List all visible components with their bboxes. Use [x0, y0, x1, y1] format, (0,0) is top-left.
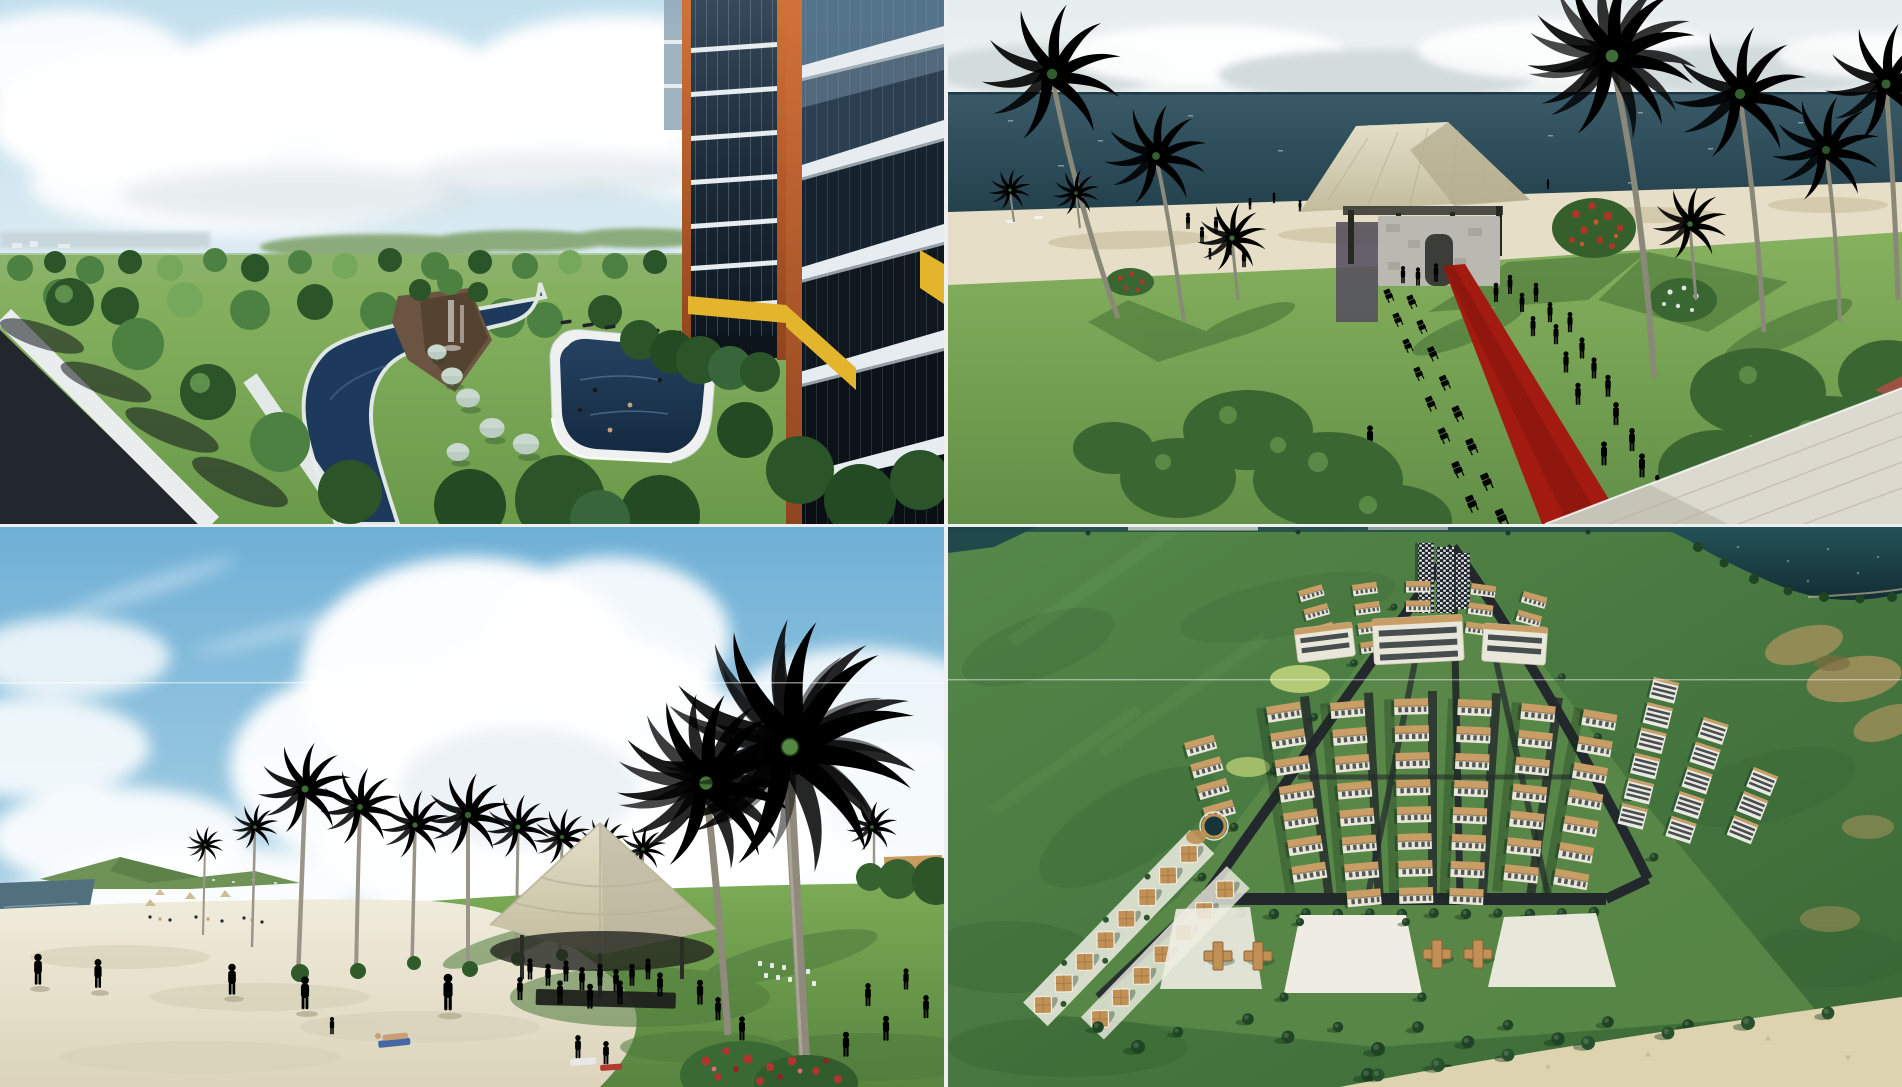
backdrop-curtain — [1336, 222, 1378, 322]
rendering-collage — [0, 0, 1902, 1087]
panel-resort-tower-pool-view — [0, 0, 944, 524]
panel-beach-wedding-ceremony — [948, 0, 1902, 524]
plazas — [1160, 907, 1616, 993]
scanline-artifact — [948, 679, 1902, 680]
panel-resort-masterplan-aerial — [948, 527, 1902, 1087]
scanline-artifact — [0, 682, 944, 684]
panel-beach-promenade-gazebo — [0, 527, 944, 1087]
